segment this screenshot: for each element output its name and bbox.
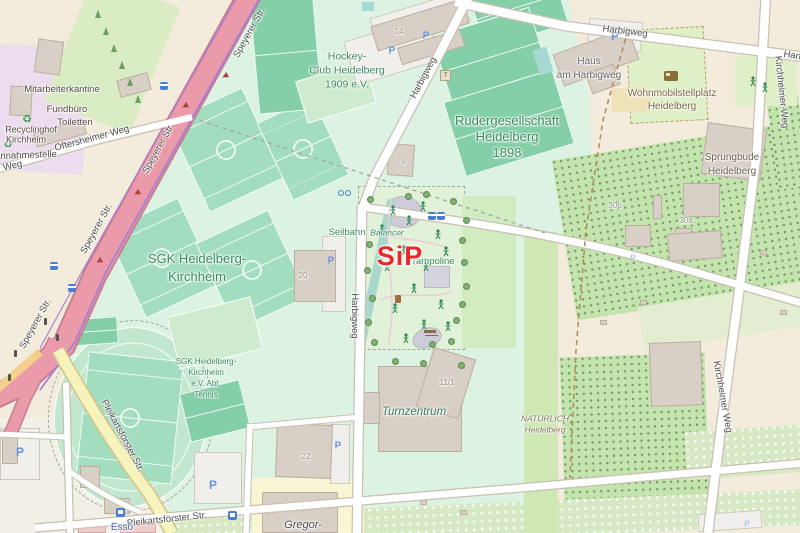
label-haus-1: Haus: [577, 57, 600, 68]
playground-figure-icon: [436, 297, 446, 315]
bus-stop-icon-3: [68, 284, 76, 292]
playground-figure-glyph: [433, 229, 443, 240]
label-turnzentrum: Turnzentrum: [382, 406, 446, 418]
tree-icon: [366, 241, 373, 248]
tree-icon: [459, 301, 466, 308]
label-fundbuero: Fundbüro: [47, 105, 88, 115]
label-sprungbude-2: Heidelberg: [708, 167, 756, 178]
tree-icon: [365, 319, 372, 326]
label-tennis-2: Kirchheim: [188, 369, 224, 377]
parking-icon: P: [744, 520, 749, 529]
label-gregor: Gregor-: [284, 520, 322, 532]
tree-icon: [453, 317, 460, 324]
label-hockey-2: Club Heidelberg: [309, 65, 384, 76]
fuel-station-icon-2: [228, 511, 237, 520]
parking-icon: P: [335, 441, 342, 452]
label-hockey-3: 1909 e.V.: [325, 79, 369, 90]
fuel-station-icon-esso: [116, 508, 125, 517]
caravan-icon: [664, 71, 678, 81]
road-branch-433-fill: [0, 434, 67, 437]
playground-figure-glyph: [748, 76, 758, 87]
traffic-signal-icon-1: [14, 350, 17, 357]
bus-stop-icon-2: [50, 262, 58, 270]
label-wohnmobil-2: Heidelberg: [648, 102, 696, 113]
tree-icon: [458, 362, 465, 369]
label-ruder-3: 1898: [493, 146, 522, 160]
playground-figure-icon: [404, 213, 414, 231]
road-harbigweg-south-fill: [357, 205, 362, 533]
tree-icon: [367, 196, 374, 203]
playground-figure-icon: [409, 281, 419, 299]
traffic-signal-icon-4: [8, 374, 11, 381]
label-tennis-4: Tennis: [194, 391, 217, 399]
playground-figure-icon: [418, 199, 428, 217]
playground-figure-icon: [419, 317, 429, 335]
bicycle-wheel-1: [338, 190, 344, 196]
parking-icon: P: [209, 478, 217, 492]
transit-stop-icon-1: [428, 212, 436, 220]
housenumber-7-badge: 7: [440, 70, 451, 81]
label-esso: Esso: [111, 523, 133, 533]
playground-figure-glyph: [388, 205, 398, 216]
tree-icon: [405, 193, 412, 200]
parking-icon: P: [328, 256, 335, 267]
road-speyerer: [0, 0, 252, 398]
tree-icon: [420, 360, 427, 367]
label-haus-2: am Harbigweg: [557, 71, 621, 82]
tree-icon: [459, 237, 466, 244]
playground-figure-icon: [388, 203, 398, 221]
parking-icon: P: [630, 254, 635, 263]
playground-figure-icon: [760, 80, 770, 98]
tree-icon: [119, 61, 125, 69]
caravan-window: [666, 73, 670, 76]
tree-icon: [127, 78, 133, 86]
housenumber-30a: 30a: [679, 217, 692, 225]
playground-figure-glyph: [418, 201, 428, 212]
bus-stop-icon-1: [160, 82, 168, 90]
transit-stop-icon-2: [437, 212, 445, 220]
bicycle-wheel-2: [345, 190, 351, 196]
label-balancer: Balancer: [370, 229, 404, 238]
label-natuerlich-2: Heidelberg: [524, 426, 565, 435]
map-canvas[interactable]: ♻ ♻ 7 Speyerer Str. Speyerer Str. Speyer…: [0, 0, 800, 533]
tree-icon: [423, 191, 430, 198]
label-tennis-1: SGK Heidelberg-: [176, 358, 236, 366]
tree-icon: [463, 217, 470, 224]
playground-figure-icon: [443, 319, 453, 337]
label-seilbahn: Seilbahn: [329, 228, 366, 238]
playground-figure-glyph: [404, 215, 414, 226]
tree-icon: [371, 339, 378, 346]
tree-icon: [461, 259, 468, 266]
parking-icon: P: [16, 445, 24, 459]
housenumber-9: 9: [401, 158, 405, 166]
label-recyclinghof-2: Kirchheim: [6, 135, 46, 144]
tree-icon: [369, 295, 376, 302]
tree-icon: [392, 358, 399, 365]
housenumber-20: 20: [299, 272, 308, 280]
bicycle-parking-icon: [338, 189, 352, 197]
tree-icon: [448, 338, 455, 345]
tree-icon: [364, 267, 371, 274]
housenumber-30b: 30b: [608, 202, 621, 210]
parking-icon: P: [423, 31, 430, 42]
label-toiletten: Toiletten: [57, 118, 92, 128]
tree-icon: [135, 95, 141, 103]
playground-figure-icon: [401, 331, 411, 349]
playground-figure-glyph: [419, 319, 429, 330]
tree-icon: [450, 198, 457, 205]
label-sgk-2: Kirchheim: [168, 270, 226, 284]
tree-icon: [95, 10, 101, 18]
playground-figure-glyph: [390, 303, 400, 314]
playground-figure-glyph: [436, 299, 446, 310]
housenumber-22: 22: [302, 453, 311, 461]
label-tennis-3: e.V. Abt.: [191, 380, 221, 388]
playground-figure-icon: [748, 74, 758, 92]
playground-figure-glyph: [401, 333, 411, 344]
label-ruder-1: Rudergesellschaft: [455, 114, 559, 128]
label-mitarbeiterkantine: Mitarbeiterkantine: [24, 85, 100, 95]
playground-figure-glyph: [443, 321, 453, 332]
label-hockey-1: Hockey-: [328, 51, 367, 62]
tree-icon: [103, 27, 109, 35]
road-pleikartsfoerster: [58, 350, 172, 533]
playground-figure-glyph: [409, 283, 419, 294]
playground-figure-icon: [433, 227, 443, 245]
label-natuerlich-1: NATÜRLICH: [521, 415, 569, 424]
road-v68-fill: [66, 383, 70, 533]
tree-icon: [111, 44, 117, 52]
parking-icon: P: [389, 46, 396, 57]
street-label-harbigweg-vertical: Harbigweg: [349, 293, 359, 338]
tree-icon: [429, 341, 436, 348]
label-ruder-2: Heidelberg: [476, 130, 539, 144]
housenumber-14: 14: [395, 28, 404, 36]
label-wohnmobil-1: Wohnmobilstellplatz: [628, 89, 717, 100]
tree-icon: [463, 283, 470, 290]
playground-figure-glyph: [760, 82, 770, 93]
label-sgk-1: SGK Heidelberg-: [148, 252, 246, 266]
housenumber-11-1: 11/1: [440, 379, 455, 387]
sip-marker-label: SiP: [377, 242, 424, 270]
traffic-signal-icon-3: [56, 334, 59, 341]
playground-figure-icon: [390, 301, 400, 319]
label-sprungbude-1: Sprungbude: [705, 153, 760, 164]
